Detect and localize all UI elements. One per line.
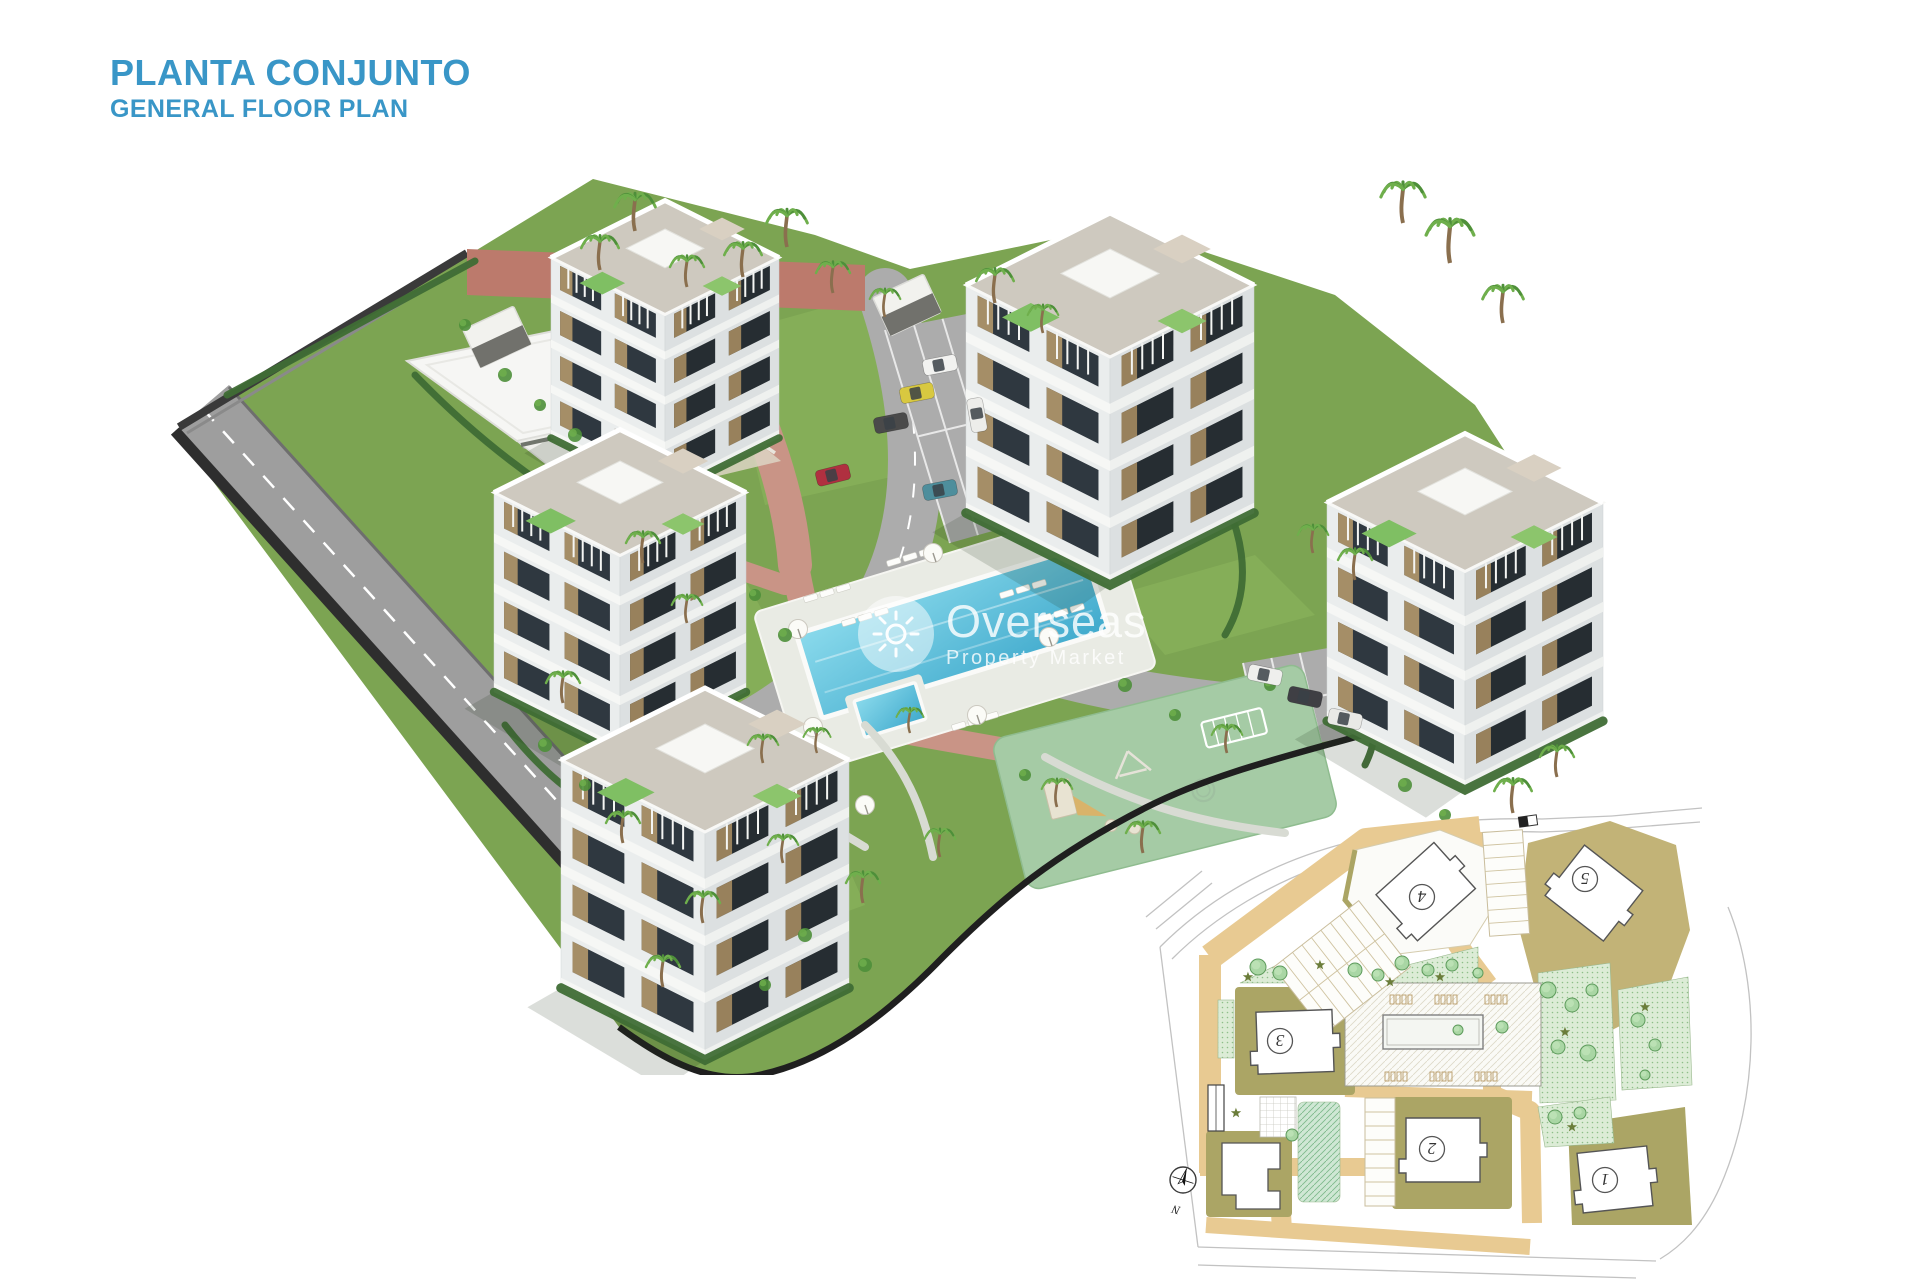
inset-building-label-3: 3 [1268,1029,1293,1054]
inset-building-footprint [1249,1009,1341,1074]
page-title-block: PLANTA CONJUNTO GENERAL FLOOR PLAN [110,52,471,124]
svg-text:1: 1 [1601,1170,1610,1189]
inset-building-label-4: 4 [1410,885,1435,910]
site-plan-inset-svg: 1 2 3 4 5 [1140,795,1800,1280]
compass-n-label: N [1169,1202,1182,1218]
inset-building-label-5: 5 [1573,867,1598,892]
inset-pool-area [1345,983,1541,1086]
inset-utility-marker [1518,815,1537,827]
page: PLANTA CONJUNTO GENERAL FLOOR PLAN [0,0,1920,1280]
inset-building-label-2: 2 [1420,1137,1445,1162]
svg-text:5: 5 [1581,869,1590,888]
page-title: PLANTA CONJUNTO [110,52,471,93]
svg-text:2: 2 [1427,1139,1436,1158]
page-subtitle: GENERAL FLOOR PLAN [110,95,471,124]
inset-building-label-1: 1 [1593,1168,1618,1193]
site-plan-inset: 1 2 3 4 5 [1140,795,1800,1280]
svg-text:3: 3 [1276,1031,1286,1050]
svg-text:4: 4 [1417,887,1426,906]
